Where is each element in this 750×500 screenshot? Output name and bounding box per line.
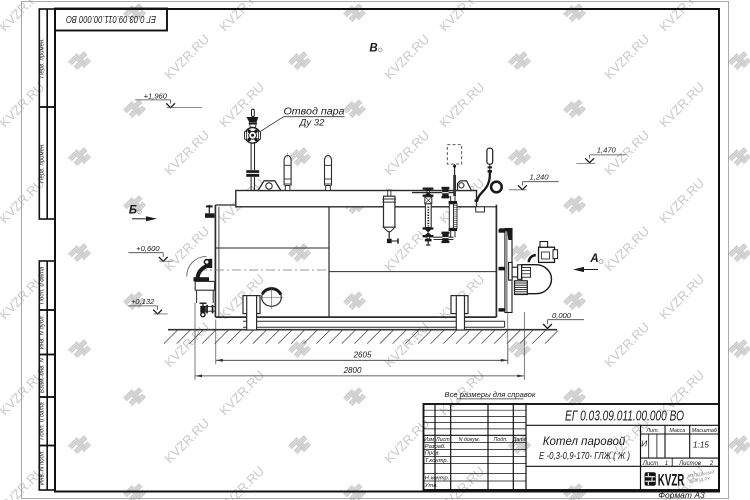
svg-text:KVZR.RU: KVZR.RU	[601, 319, 652, 370]
svg-text:Отвод пара: Отвод пара	[284, 107, 345, 118]
svg-text:Ду 32: Ду 32	[299, 117, 325, 128]
svg-text:2605: 2605	[353, 351, 372, 360]
svg-text:Подп. и дата: Подп. и дата	[40, 402, 46, 440]
svg-text:Масса: Масса	[669, 428, 685, 434]
svg-text:Н.контр.: Н.контр.	[425, 475, 450, 481]
svg-text:Е -0,3-0,9-170- ГЛЖ ( Ж ): Е -0,3-0,9-170- ГЛЖ ( Ж )	[539, 451, 630, 462]
svg-text:KVZR.RU: KVZR.RU	[0, 0, 47, 34]
svg-text:KVZR.RU: KVZR.RU	[656, 271, 707, 322]
svg-text:KVZR.RU: KVZR.RU	[436, 79, 487, 130]
svg-text:Формат А3: Формат А3	[658, 490, 705, 500]
svg-text:Взам. инв. N: Взам. инв. N	[40, 357, 46, 393]
svg-text:Подп.: Подп.	[494, 437, 508, 443]
svg-text:N докум.: N докум.	[459, 437, 480, 443]
svg-text:А: А	[589, 253, 598, 265]
svg-text:Перв. примен.: Перв. примен.	[40, 38, 46, 78]
svg-text:KVZR.RU: KVZR.RU	[0, 79, 47, 130]
svg-text:2800: 2800	[343, 366, 362, 375]
svg-text:0,000: 0,000	[552, 311, 572, 320]
svg-text:ЕГ 0.03.09.011.00.000 ВО: ЕГ 0.03.09.011.00.000 ВО	[565, 408, 684, 424]
svg-text:1,470: 1,470	[597, 145, 617, 154]
svg-text:KVZR.RU: KVZR.RU	[161, 415, 212, 466]
svg-text:KVZR.RU: KVZR.RU	[436, 463, 487, 500]
svg-text:Изм: Изм	[424, 437, 434, 443]
svg-text:2: 2	[709, 461, 714, 467]
svg-text:+0,132: +0,132	[131, 297, 155, 306]
svg-text:Листов: Листов	[678, 461, 701, 467]
svg-text:KVZR.RU: KVZR.RU	[656, 79, 707, 130]
svg-text:Пров.: Пров.	[425, 451, 440, 457]
svg-text:Котел паровой: Котел паровой	[543, 436, 626, 448]
svg-text:Инв. N подл.: Инв. N подл.	[40, 450, 46, 485]
svg-text:Утв.: Утв.	[424, 483, 438, 489]
svg-text:KVZR: KVZR	[658, 470, 685, 489]
svg-text:Лит.: Лит.	[645, 428, 659, 434]
svg-text:Масштаб: Масштаб	[692, 428, 718, 434]
svg-text:Лист: Лист	[642, 461, 658, 467]
svg-text:KVZR.RU: KVZR.RU	[381, 31, 432, 82]
svg-text:KVZR.RU: KVZR.RU	[216, 463, 267, 500]
svg-text:KVZR.RU: KVZR.RU	[436, 0, 487, 34]
svg-text:Т.контр.: Т.контр.	[425, 458, 448, 464]
svg-text:ЕГ 0.03.09.011.00.000 ВО: ЕГ 0.03.09.011.00.000 ВО	[66, 13, 156, 24]
svg-text:KVZR.RU: KVZR.RU	[656, 0, 707, 34]
svg-text:Б: Б	[129, 205, 137, 217]
svg-text:И: И	[641, 439, 648, 449]
svg-text:KVZR.RU: KVZR.RU	[381, 127, 432, 178]
svg-text:KVZR.RU: KVZR.RU	[161, 127, 212, 178]
svg-text:Лист: Лист	[435, 437, 450, 443]
svg-text:+1,960: +1,960	[144, 91, 168, 100]
svg-text:Разраб.: Разраб.	[425, 444, 446, 450]
svg-text:KVZR.RU: KVZR.RU	[601, 223, 652, 274]
svg-text:1: 1	[665, 461, 668, 467]
svg-text:KVZR.RU: KVZR.RU	[656, 175, 707, 226]
svg-text:1,240: 1,240	[529, 172, 549, 181]
svg-text:KVZR.RU: KVZR.RU	[216, 367, 267, 418]
svg-text:Перв. примен.: Перв. примен.	[40, 143, 46, 183]
svg-text:KVZR.RU: KVZR.RU	[601, 31, 652, 82]
svg-text:Подп. и дата: Подп. и дата	[40, 266, 46, 304]
svg-text:KVZR.RU: KVZR.RU	[161, 31, 212, 82]
svg-text:KVZR.RU: KVZR.RU	[216, 0, 267, 34]
svg-text:+0,600: +0,600	[136, 244, 160, 253]
svg-text:1:15: 1:15	[693, 440, 709, 449]
svg-text:Все размеры для справок: Все размеры для справок	[445, 390, 536, 399]
svg-text:В: В	[369, 43, 377, 55]
svg-text:Инв. N дубл.: Инв. N дубл.	[40, 315, 46, 350]
svg-text:KVZR.RU: KVZR.RU	[161, 319, 212, 370]
svg-text:Дата: Дата	[512, 437, 527, 443]
svg-text:KVZR.RU: KVZR.RU	[216, 79, 267, 130]
